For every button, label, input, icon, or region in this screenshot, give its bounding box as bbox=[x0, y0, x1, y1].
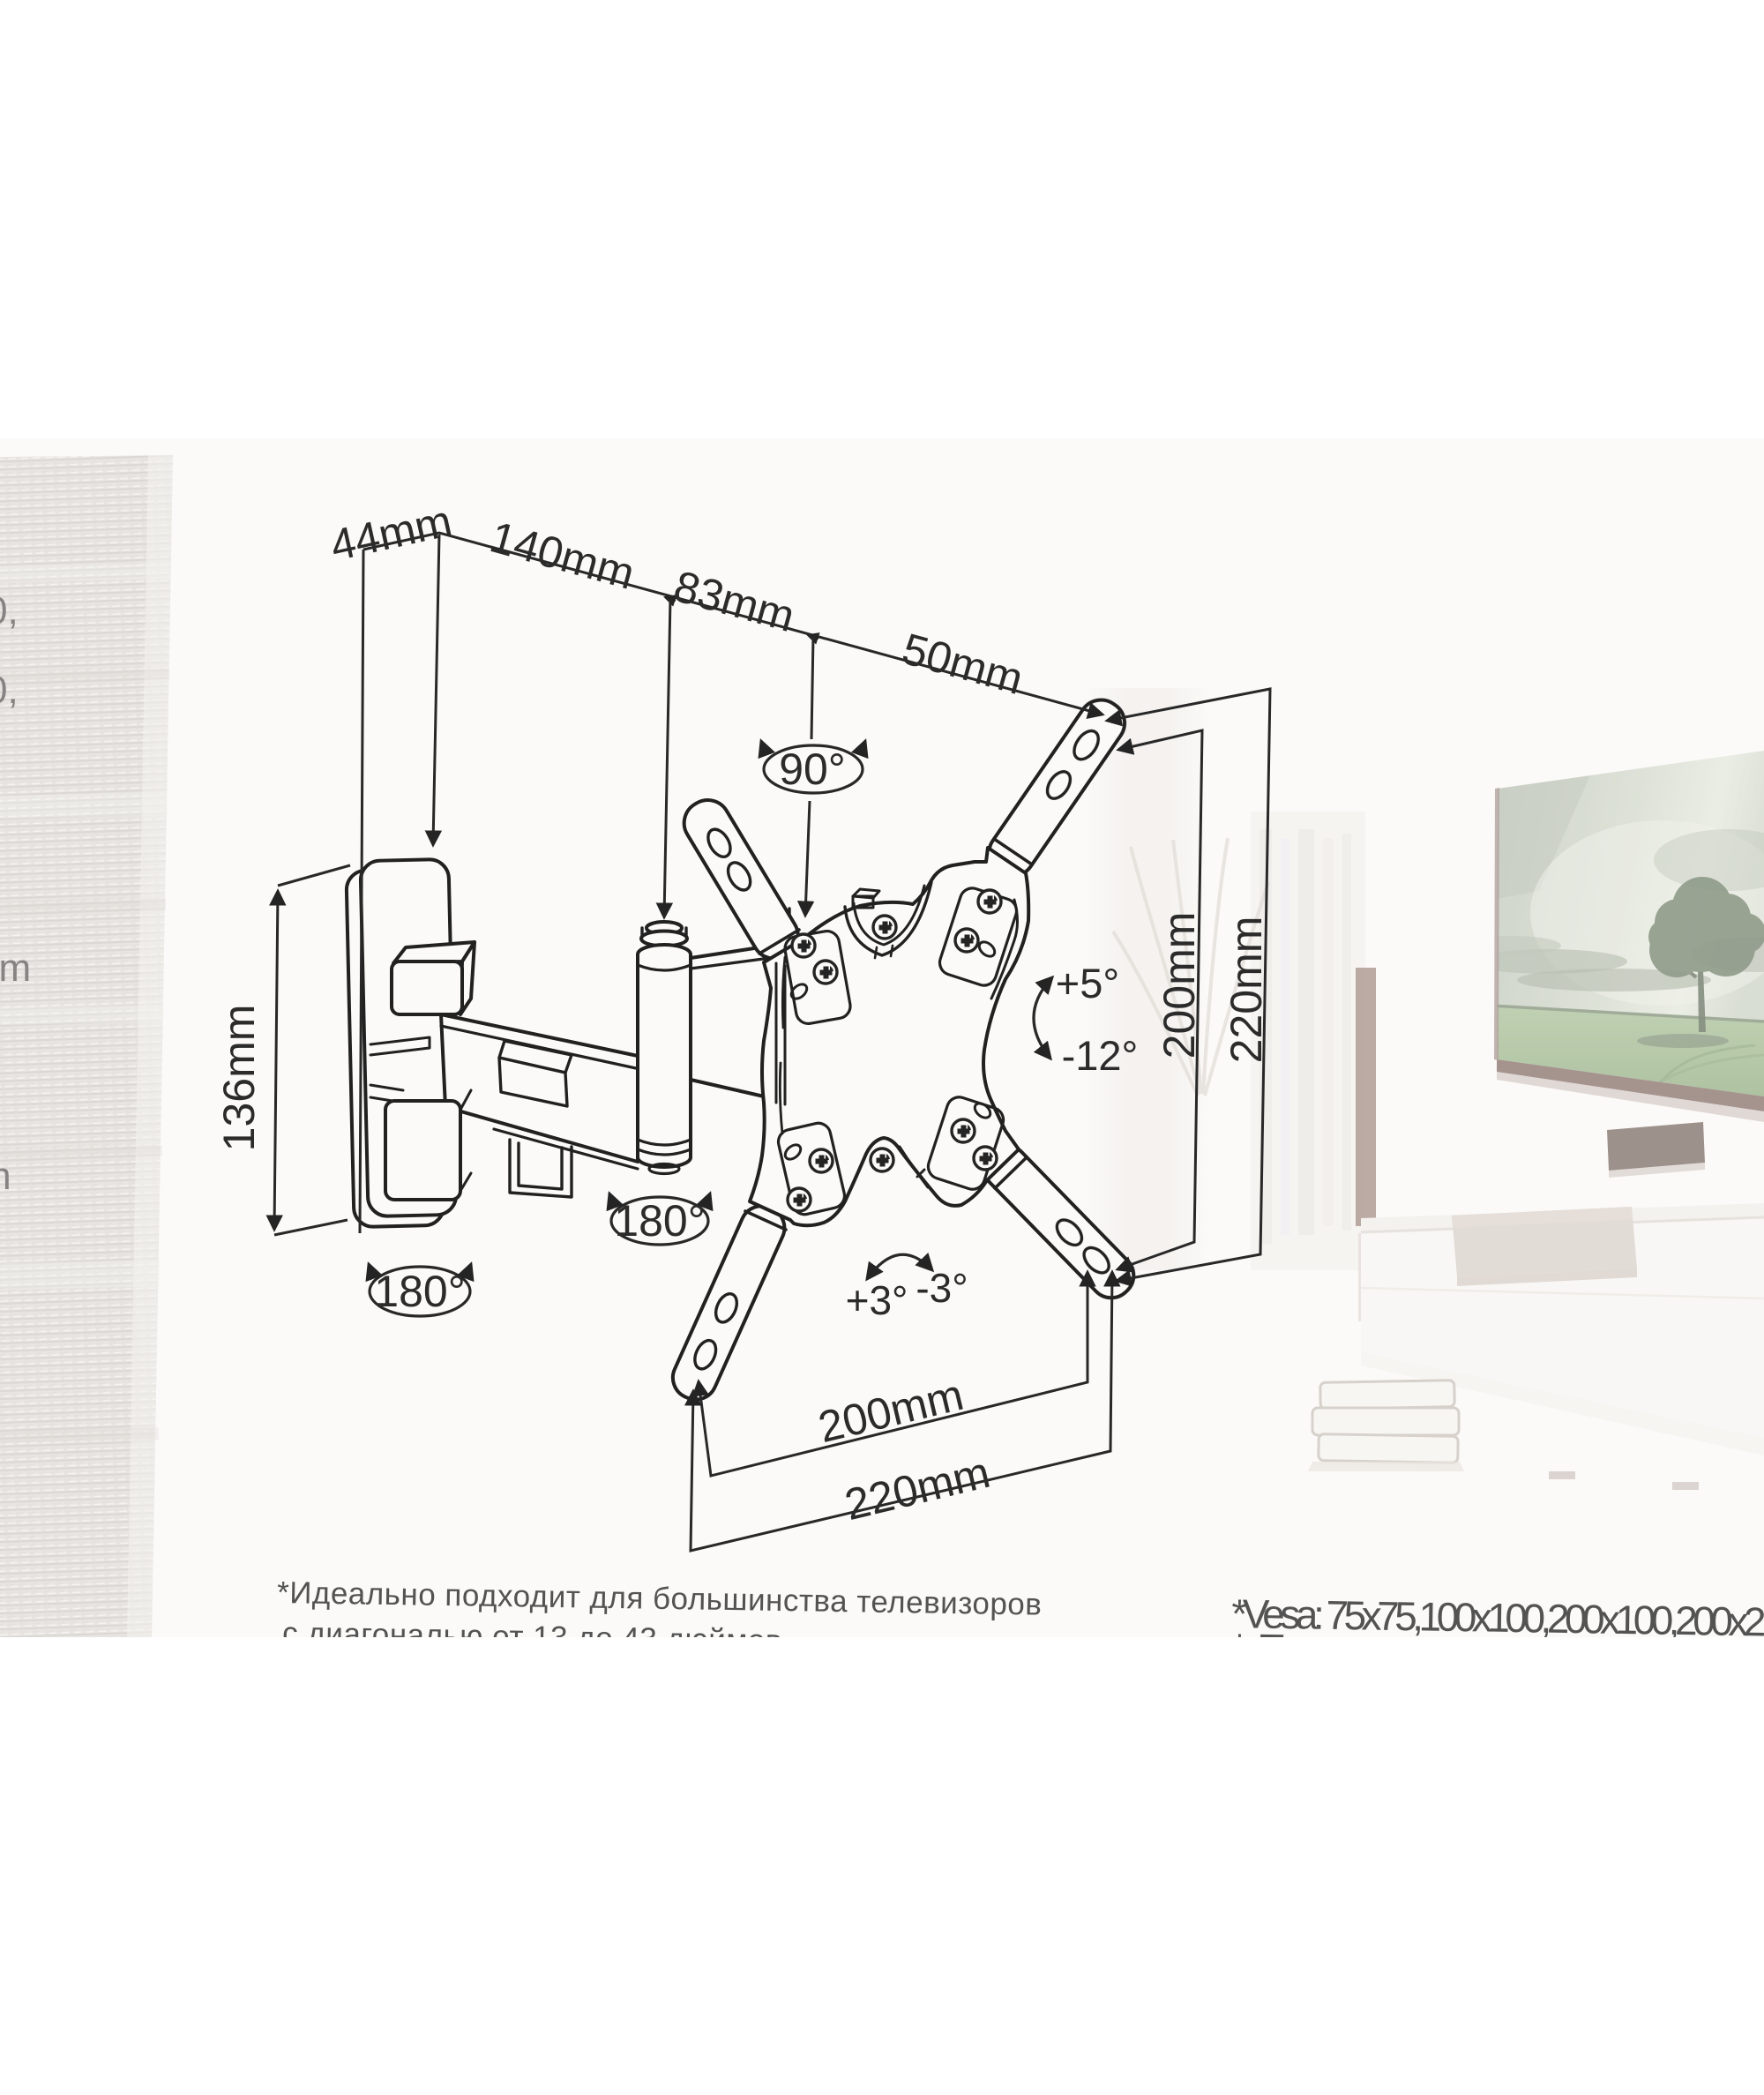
svg-text:0,: 0, bbox=[0, 669, 19, 712]
svg-text:m: m bbox=[0, 1155, 11, 1198]
svg-text:220mm: 220mm bbox=[1222, 917, 1271, 1064]
svg-text:90°: 90° bbox=[779, 744, 846, 794]
svg-text:200mm: 200mm bbox=[1155, 912, 1204, 1059]
svg-text:-3°: -3° bbox=[916, 1265, 968, 1311]
svg-text:nm: nm bbox=[0, 946, 31, 990]
svg-text:180°: 180° bbox=[374, 1267, 465, 1316]
svg-text:180°: 180° bbox=[614, 1196, 705, 1246]
svg-text:-12°: -12° bbox=[1062, 1032, 1139, 1079]
svg-text:136mm: 136mm bbox=[214, 1005, 264, 1152]
svg-text:*Vesa: 75x75,100x100,200x100,2: *Vesa: 75x75,100x100,200x100,200x2 bbox=[1231, 1590, 1764, 1644]
svg-text:0,: 0, bbox=[0, 589, 19, 632]
svg-text:+3°: +3° bbox=[846, 1277, 908, 1323]
svg-text:+5°: +5° bbox=[1056, 960, 1119, 1006]
